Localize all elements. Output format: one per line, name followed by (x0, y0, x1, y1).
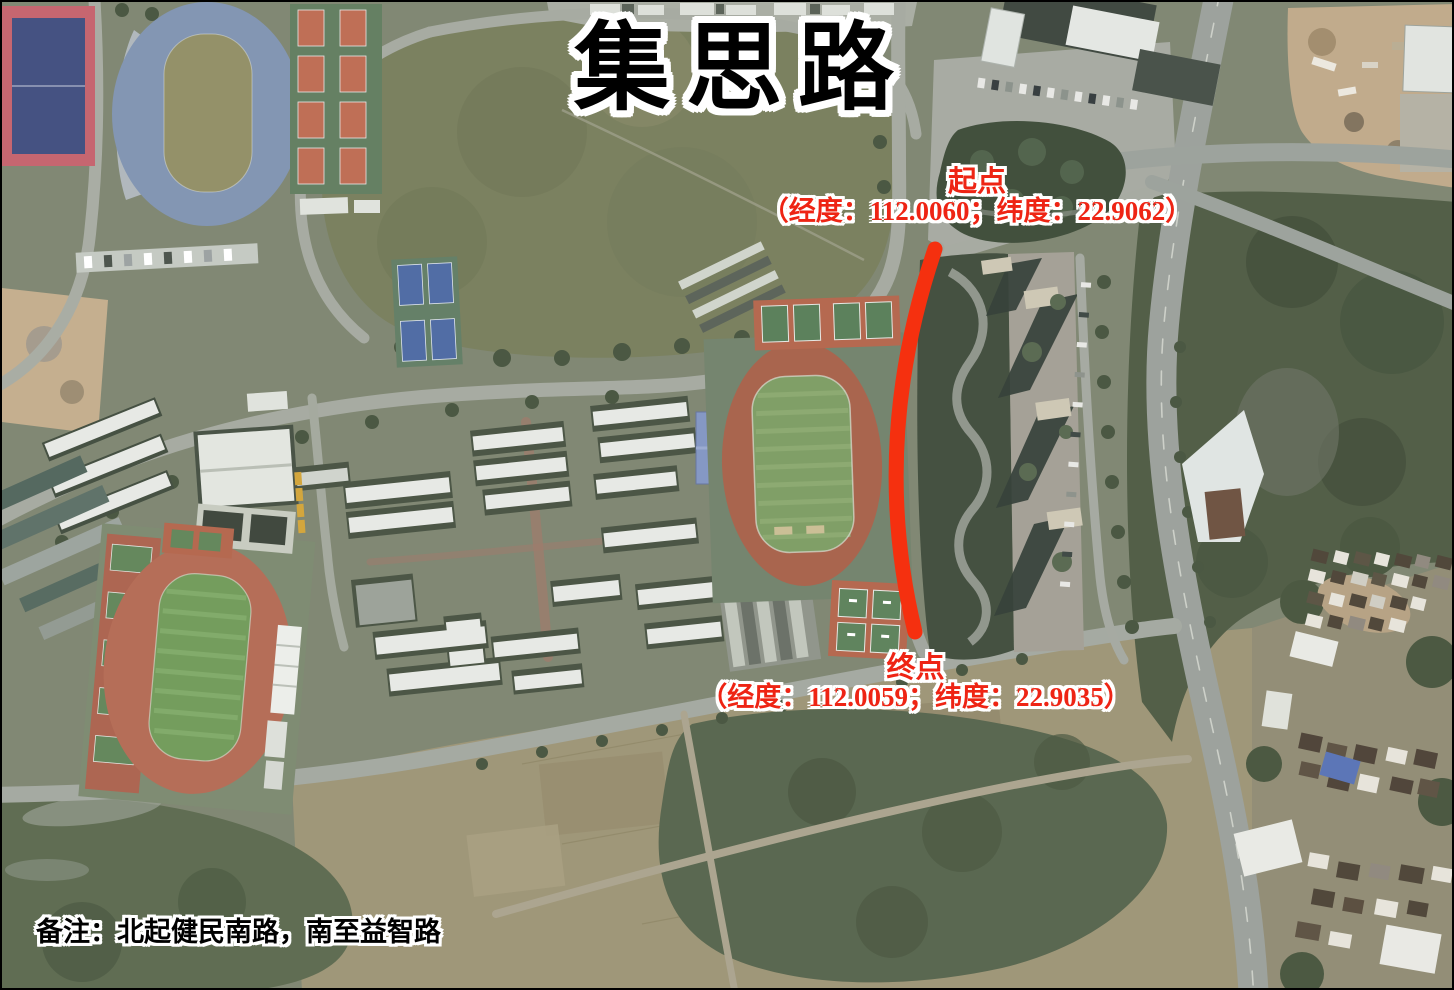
map-note: 备注：北起健民南路，南至益智路 (36, 910, 441, 949)
end-point-label: 终点 (678, 654, 1153, 684)
satellite-map-figure: 集思路 起点 （经度：112.0060；纬度：22.9062） 终点 （经度：1… (0, 0, 1454, 990)
start-point-coordinates: （经度：112.0060；纬度：22.9062） (742, 198, 1212, 226)
end-point-annotation: 终点 （经度：112.0059；纬度：22.9035） (678, 654, 1153, 711)
haze-overlay (2, 2, 1454, 990)
start-point-label: 起点 (742, 168, 1212, 198)
end-point-coordinates: （经度：112.0059；纬度：22.9035） (678, 684, 1153, 712)
satellite-map (2, 2, 1454, 990)
start-point-annotation: 起点 （经度：112.0060；纬度：22.9062） (742, 168, 1212, 225)
road-name-title: 集思路 (574, 16, 910, 122)
